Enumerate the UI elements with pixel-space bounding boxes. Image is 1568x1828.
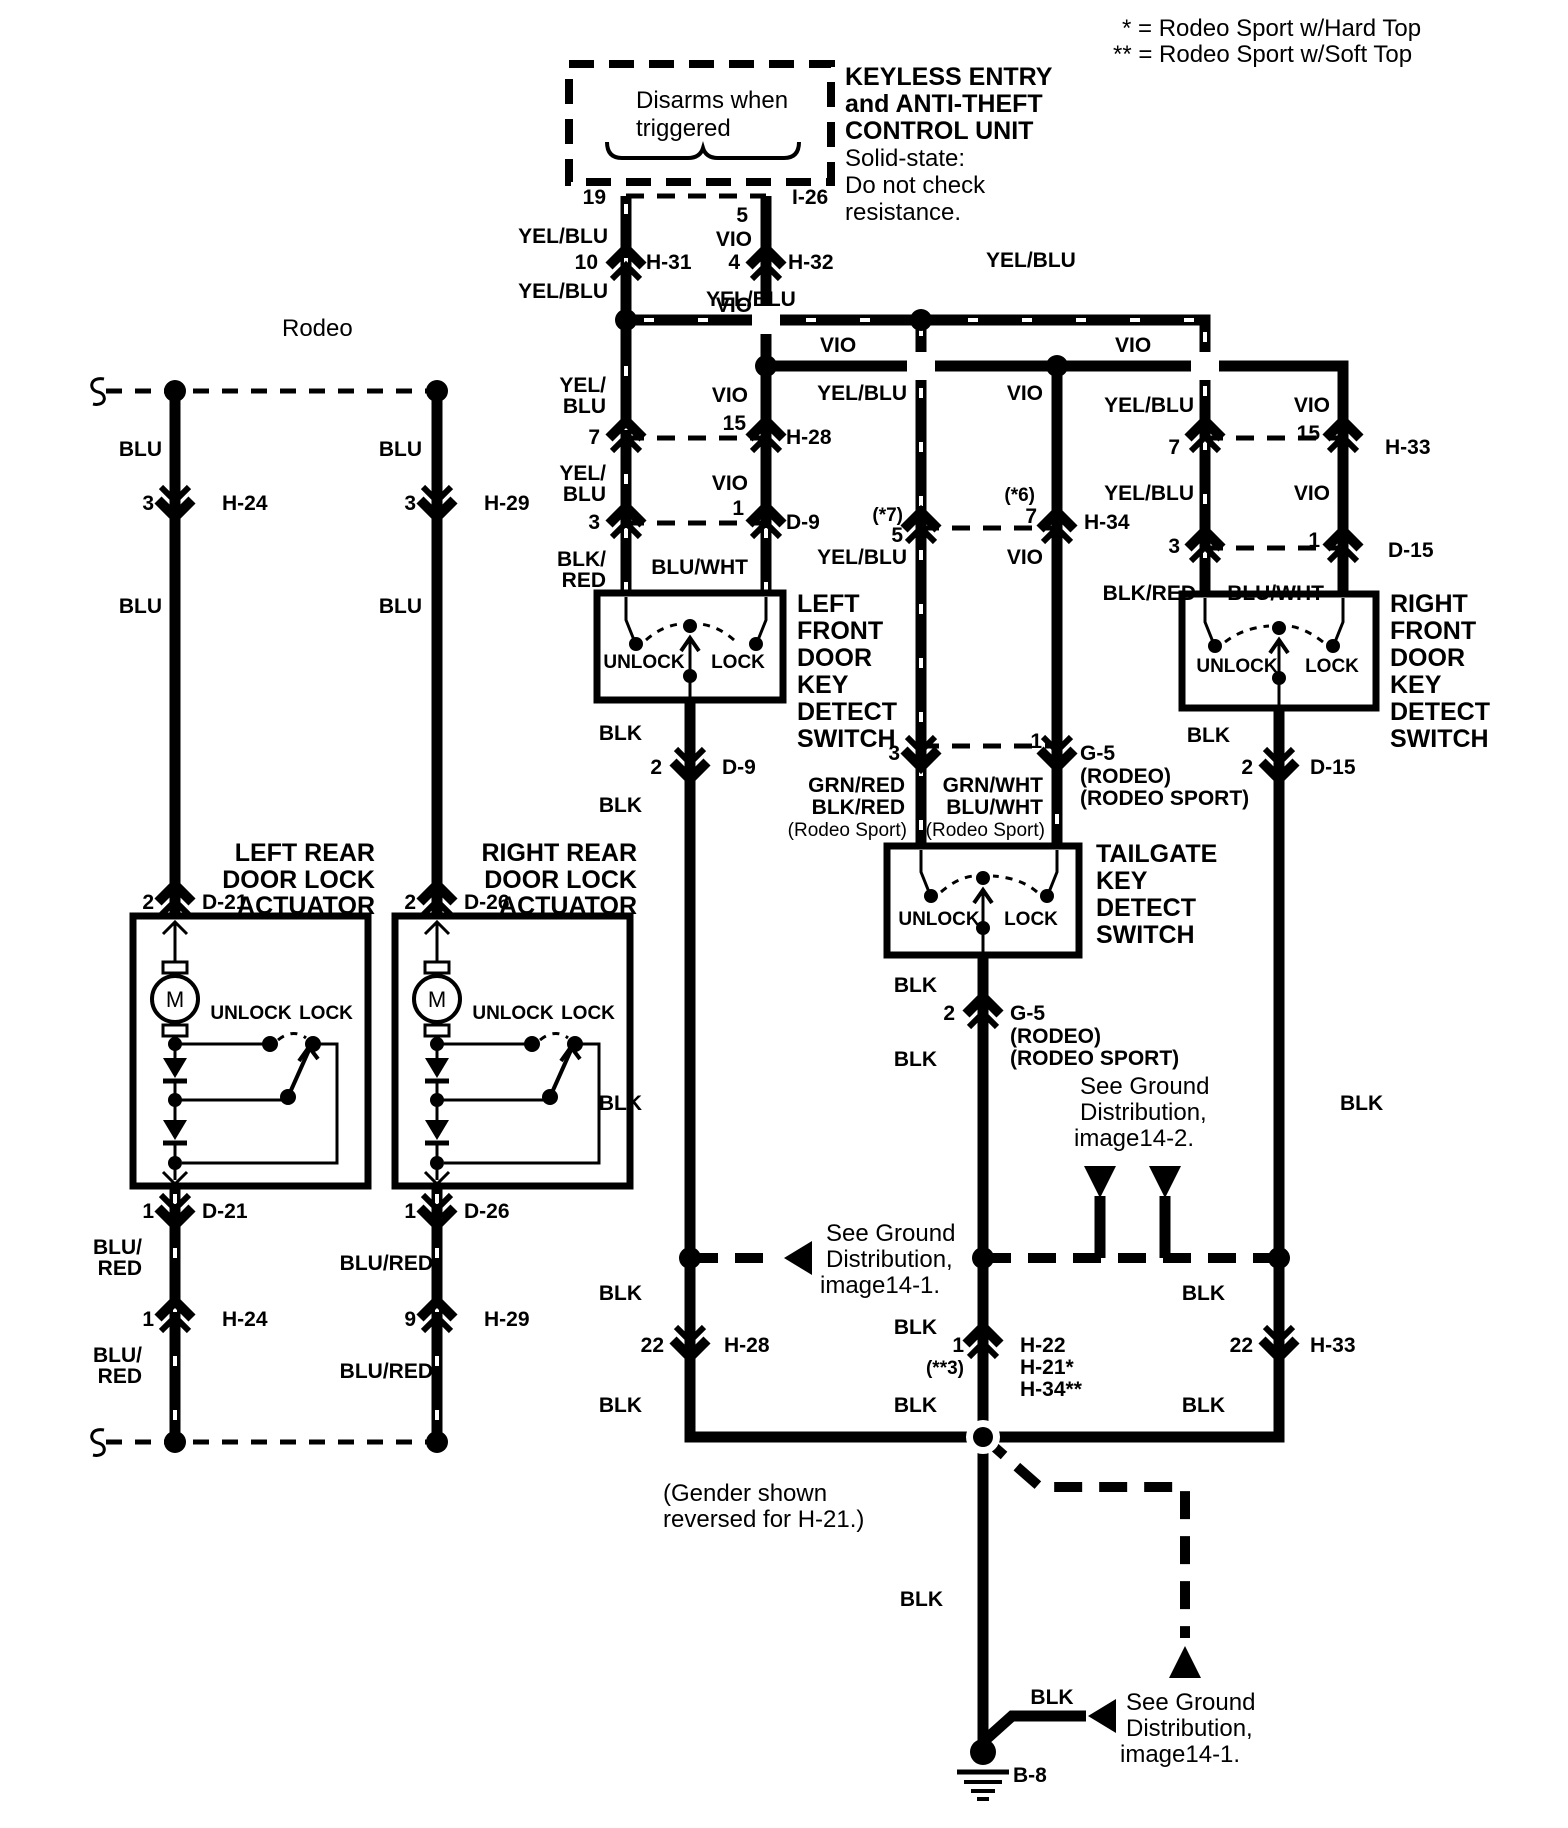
note: Distribution, xyxy=(1126,1715,1253,1742)
unit-subnote: Do not check xyxy=(845,172,986,199)
wire-label: YEL/ xyxy=(559,374,606,397)
wiring-diagram: * = Rodeo Sport w/Hard Top ** = Rodeo Sp… xyxy=(0,0,1568,1828)
wire-label: VIO xyxy=(712,384,748,407)
brace xyxy=(607,142,799,158)
switch-lock-label: LOCK xyxy=(1305,656,1359,677)
note: image14-2. xyxy=(1074,1125,1194,1152)
wire-label: BLU/ xyxy=(93,1344,142,1367)
switch-lock-label: LOCK xyxy=(711,652,765,673)
component-title: DOOR xyxy=(1390,644,1465,672)
legend-soft-top: ** = Rodeo Sport w/Soft Top xyxy=(1113,41,1412,68)
connector: H-22 xyxy=(1020,1334,1066,1357)
connector: H-24 xyxy=(222,492,268,515)
connector: H-29 xyxy=(484,1308,530,1331)
connector: I-26 xyxy=(792,186,828,209)
component-title: SWITCH xyxy=(1096,921,1195,949)
unit-title: KEYLESS ENTRY xyxy=(845,63,1053,91)
wire-label: BLK/RED xyxy=(1103,582,1196,605)
wire-label: GRN/WHT xyxy=(943,774,1043,797)
component-title: RIGHT xyxy=(1390,590,1468,618)
pin: 7 xyxy=(1168,436,1180,459)
wire-label: BLK xyxy=(599,722,642,745)
pin: 4 xyxy=(728,251,740,274)
note: (Gender shown xyxy=(663,1480,827,1507)
pin: 1 xyxy=(732,497,744,520)
connector: H-33 xyxy=(1385,436,1431,459)
connector-variant: (RODEO) xyxy=(1080,765,1171,788)
pin: 9 xyxy=(404,1308,416,1331)
component-title: DOOR LOCK xyxy=(484,866,637,894)
wire-label: VIO xyxy=(1294,394,1330,417)
component-title: DETECT xyxy=(1096,894,1196,922)
wire-label: BLU/ xyxy=(93,1236,142,1259)
pin: 3 xyxy=(142,492,154,515)
connector: H-28 xyxy=(786,426,832,449)
wire-label: YEL/ xyxy=(559,462,606,485)
switch-lock-label: LOCK xyxy=(1004,909,1058,930)
component-title: LEFT REAR xyxy=(235,839,375,867)
wire-label: BLU xyxy=(379,595,422,618)
wire-label: YEL/BLU xyxy=(986,249,1076,272)
note: Distribution, xyxy=(826,1246,953,1273)
note: image14-1. xyxy=(1120,1741,1240,1768)
connector: D-15 xyxy=(1388,539,1434,562)
wire-label: YEL/BLU xyxy=(817,382,907,405)
connector-variant: (RODEO) xyxy=(1010,1025,1101,1048)
connector: H-24 xyxy=(222,1308,268,1331)
switch-lock-label: LOCK xyxy=(561,1003,615,1024)
continuation-squiggle xyxy=(92,1430,105,1456)
pin: 1 xyxy=(1030,730,1042,753)
connector: B-8 xyxy=(1013,1764,1047,1787)
wire-label: YEL/BLU xyxy=(518,225,608,248)
component-title: KEY xyxy=(1390,671,1442,699)
arrow-up-icon xyxy=(1169,1646,1201,1678)
left-front-switch-internals xyxy=(626,597,766,700)
wire-label: VIO xyxy=(716,228,752,251)
footnote: (*6) xyxy=(1004,485,1035,506)
wire-label: VIO xyxy=(1007,546,1043,569)
wire-label: BLK xyxy=(900,1588,943,1611)
wire-label: BLU xyxy=(563,483,606,506)
pin: 1 xyxy=(1308,529,1320,552)
wire-label: VIO xyxy=(1115,334,1151,357)
pin: 5 xyxy=(891,524,903,547)
component-title: DOOR xyxy=(797,644,872,672)
wire-label: BLU/RED xyxy=(340,1252,433,1275)
wire-label: BLK xyxy=(1187,724,1230,747)
wire-label: BLU/WHT xyxy=(1227,582,1324,605)
wire-label: BLK xyxy=(1182,1282,1225,1305)
pin: 2 xyxy=(1241,756,1253,779)
unit-note: Disarms when xyxy=(636,87,788,114)
connector: H-34** xyxy=(1020,1378,1083,1401)
unit-title: and ANTI-THEFT xyxy=(845,90,1043,118)
pin: 1 xyxy=(952,1334,964,1357)
pin: 2 xyxy=(142,891,154,914)
wire-label: BLK xyxy=(599,1092,642,1115)
pin: 1 xyxy=(142,1200,154,1223)
unit-note: triggered xyxy=(636,115,731,142)
wire-label: BLK xyxy=(894,1394,937,1417)
pin: 2 xyxy=(650,756,662,779)
note: Distribution, xyxy=(1080,1099,1207,1126)
wire-label: BLU xyxy=(119,595,162,618)
connector: D-21 xyxy=(202,891,248,914)
connector-variant: (RODEO SPORT) xyxy=(1080,787,1249,810)
diagram-canvas: * = Rodeo Sport w/Hard Top ** = Rodeo Sp… xyxy=(0,0,1568,1828)
connector: H-33 xyxy=(1310,1334,1356,1357)
pin: 7 xyxy=(588,426,600,449)
connector: H-31 xyxy=(646,251,692,274)
component-title: KEY xyxy=(797,671,849,699)
wire-label: YEL/BLU xyxy=(1104,394,1194,417)
wire-label: BLK/ xyxy=(557,548,606,571)
wire-label: BLK xyxy=(599,794,642,817)
wire-label: RED xyxy=(562,569,606,592)
component-title: SWITCH xyxy=(1390,725,1489,753)
connector: D-21 xyxy=(202,1200,248,1223)
pin: 22 xyxy=(641,1334,664,1357)
connector: D-9 xyxy=(722,756,756,779)
connector: D-26 xyxy=(464,1200,510,1223)
wire-variant: (Rodeo Sport) xyxy=(788,820,907,841)
component-title: TAILGATE xyxy=(1096,840,1217,868)
wire-label: BLK xyxy=(1340,1092,1383,1115)
wire-label: BLU/WHT xyxy=(651,556,748,579)
connector: D-15 xyxy=(1310,756,1356,779)
connector: G-5 xyxy=(1010,1002,1045,1025)
wire-label: BLK xyxy=(599,1282,642,1305)
pin: 2 xyxy=(404,891,416,914)
wire-label: BLK xyxy=(599,1394,642,1417)
pin: 3 xyxy=(1168,535,1180,558)
motor-label: M xyxy=(166,987,184,1012)
switch-unlock-label: UNLOCK xyxy=(210,1003,292,1024)
switch-unlock-label: UNLOCK xyxy=(603,652,685,673)
pin: 22 xyxy=(1230,1334,1253,1357)
component-title: RIGHT REAR xyxy=(481,839,637,867)
wire-variant: (Rodeo Sport) xyxy=(926,820,1045,841)
connector: H-28 xyxy=(724,1334,770,1357)
pin: 15 xyxy=(1297,422,1321,445)
wire-label: VIO xyxy=(1294,482,1330,505)
connector: H-29 xyxy=(484,492,530,515)
component-title: DOOR LOCK xyxy=(222,866,375,894)
pin: 10 xyxy=(575,251,598,274)
tailgate-switch-internals xyxy=(921,850,1057,955)
wire-label: YEL/BLU xyxy=(1104,482,1194,505)
right-rear-actuator-internals xyxy=(414,922,599,1184)
section-title: Rodeo xyxy=(282,315,353,342)
pin: 3 xyxy=(404,492,416,515)
note: reversed for H-21.) xyxy=(663,1506,864,1533)
wire-label: BLU xyxy=(119,438,162,461)
wire-label: BLK/RED xyxy=(812,796,905,819)
component-title: DETECT xyxy=(797,698,897,726)
note: See Ground xyxy=(1080,1073,1209,1100)
wire-label: BLU xyxy=(379,438,422,461)
wire-label: GRN/RED xyxy=(808,774,905,797)
arrow-left-icon xyxy=(784,1241,812,1275)
wire-label: YEL/BLU xyxy=(817,546,907,569)
right-front-switch-internals xyxy=(1205,598,1343,708)
wire-label: BLU xyxy=(563,395,606,418)
connector-variant: (RODEO SPORT) xyxy=(1010,1047,1179,1070)
pin: 2 xyxy=(943,1002,955,1025)
switch-unlock-label: UNLOCK xyxy=(472,1003,554,1024)
footnote: (**3) xyxy=(926,1358,964,1379)
component-title: ACTUATOR xyxy=(499,892,637,920)
wire-label: VIO xyxy=(820,334,856,357)
component-title: ACTUATOR xyxy=(237,892,375,920)
arrow-left-icon xyxy=(1088,1699,1116,1733)
unit-title: CONTROL UNIT xyxy=(845,117,1033,145)
switch-lock-label: LOCK xyxy=(299,1003,353,1024)
connector: H-34 xyxy=(1084,511,1130,534)
wire-label: RED xyxy=(98,1365,142,1388)
unit-subnote: resistance. xyxy=(845,199,961,226)
note: See Ground xyxy=(1126,1689,1255,1716)
wire-label: BLK xyxy=(1030,1686,1073,1709)
left-rear-actuator-internals xyxy=(152,922,337,1184)
wire-label: RED xyxy=(98,1257,142,1280)
connector: H-21* xyxy=(1020,1356,1075,1379)
pin: 1 xyxy=(142,1308,154,1331)
wire-label: YEL/BLU xyxy=(706,288,796,311)
pin: 3 xyxy=(588,511,600,534)
pin: 1 xyxy=(404,1200,416,1223)
wire-label: BLU/WHT xyxy=(946,796,1043,819)
wire-label: BLK xyxy=(894,1048,937,1071)
legend-hard-top: * = Rodeo Sport w/Hard Top xyxy=(1122,15,1421,42)
wire-label: BLK xyxy=(894,974,937,997)
connector: D-26 xyxy=(464,891,510,914)
wire-label: BLU/RED xyxy=(340,1360,433,1383)
wire-label: VIO xyxy=(712,472,748,495)
pin: 19 xyxy=(583,186,606,209)
switch-unlock-label: UNLOCK xyxy=(1196,656,1278,677)
component-title: FRONT xyxy=(797,617,883,645)
motor-label: M xyxy=(428,987,446,1012)
wire-label: YEL/BLU xyxy=(518,280,608,303)
pin: 7 xyxy=(1025,505,1037,528)
component-title: DETECT xyxy=(1390,698,1490,726)
unit-subnote: Solid-state: xyxy=(845,145,965,172)
switch-unlock-label: UNLOCK xyxy=(898,909,980,930)
pin: 5 xyxy=(736,204,748,227)
pin: 3 xyxy=(888,742,900,765)
component-title: SWITCH xyxy=(797,725,896,753)
note: See Ground xyxy=(826,1220,955,1247)
wire-label: BLK xyxy=(1182,1394,1225,1417)
footnote: (*7) xyxy=(872,505,903,526)
connector: D-9 xyxy=(786,511,820,534)
wire-label: VIO xyxy=(1007,382,1043,405)
connector: H-32 xyxy=(788,251,834,274)
note: image14-1. xyxy=(820,1272,940,1299)
component-title: KEY xyxy=(1096,867,1148,895)
wire-label: BLK xyxy=(894,1316,937,1339)
ground-symbol xyxy=(957,1772,1009,1799)
arrow-down-icon xyxy=(1084,1166,1116,1198)
arrow-down-icon xyxy=(1149,1166,1181,1198)
connector: G-5 xyxy=(1080,742,1115,765)
pin: 15 xyxy=(723,412,747,435)
component-title: LEFT xyxy=(797,590,860,618)
component-title: FRONT xyxy=(1390,617,1476,645)
continuation-squiggle xyxy=(92,379,105,405)
